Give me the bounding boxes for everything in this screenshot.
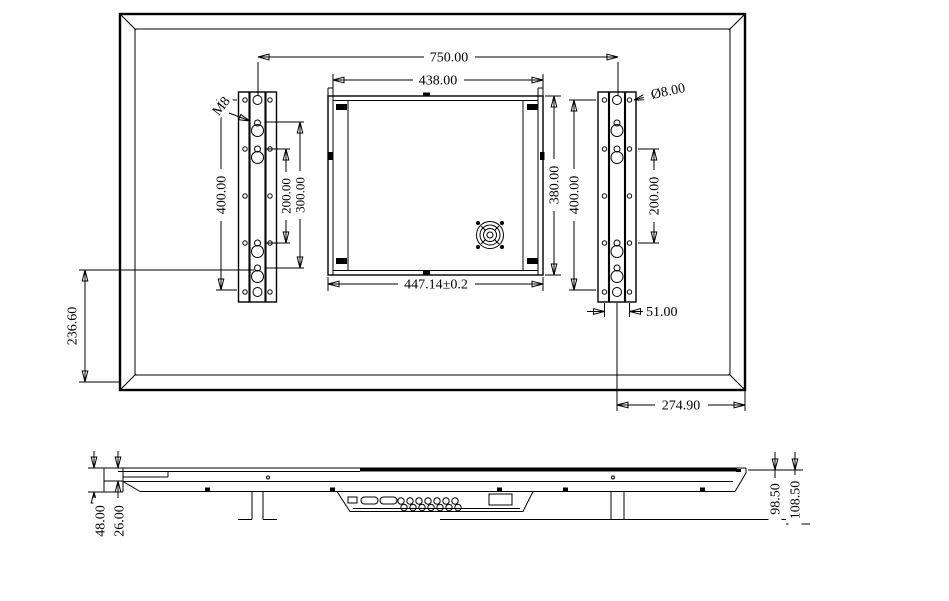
dim-label: 26.00 (113, 505, 128, 537)
technical-drawing: 750.00 438.00 447.14±0.2 (0, 0, 949, 601)
dim-label: 447.14±0.2 (404, 278, 468, 293)
drawing-canvas: 750.00 438.00 447.14±0.2 (0, 0, 949, 601)
dim-label: 200.00 (648, 177, 663, 216)
dim-label: 48.00 (94, 505, 109, 537)
dim-label: 200.00 (279, 178, 294, 214)
dim-label: 438.00 (419, 74, 458, 89)
dim-label: 108.50 (789, 481, 804, 520)
dim-label: 236.60 (66, 307, 81, 346)
dim-label: 400.00 (215, 176, 230, 215)
dim-label: 750.00 (430, 51, 469, 66)
dim-label: 380.00 (548, 166, 563, 205)
dim-label: 400.00 (568, 176, 583, 215)
dim-label: 98.50 (769, 483, 784, 515)
dim-label: 300.00 (293, 177, 308, 213)
dim-label: 51.00 (646, 305, 678, 320)
dim-label: 274.90 (662, 399, 701, 414)
